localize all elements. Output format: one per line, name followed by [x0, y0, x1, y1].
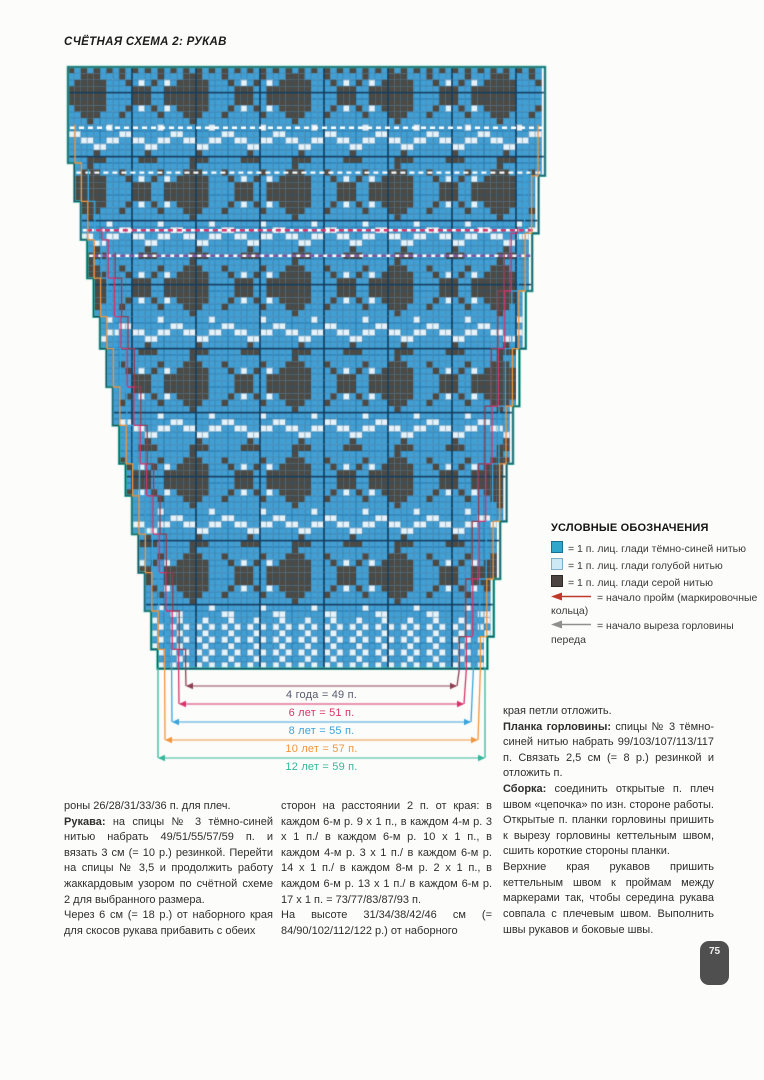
size-measurement-label: 6 лет = 51 п.: [237, 707, 407, 719]
legend-item: = 1 п. лиц. глади серой нитью: [551, 575, 759, 591]
text-column-left: роны 26/28/31/33/36 п. для плеч.Рукава: …: [64, 799, 273, 939]
legend-item: = начало пройм (маркировочные кольца): [551, 592, 759, 620]
paragraph-lead: Планка горловины:: [503, 721, 611, 733]
paragraph: сторон на расстоянии 2 п. от края: в каж…: [281, 799, 492, 908]
size-measurement-label: 12 лет = 59 п.: [237, 761, 407, 773]
page-number: 75: [709, 946, 720, 957]
stitch-color-swatch-icon: [551, 575, 563, 587]
text-column-right: края петли отложить.Планка горловины: сп…: [503, 704, 714, 938]
paragraph: На высоте 31/34/38/42/46 см (= 84/90/102…: [281, 908, 492, 939]
paragraph: Сборка: соединить открытые п. плеч швом …: [503, 782, 714, 860]
legend: УСЛОВНЫЕ ОБОЗНАЧЕНИЯ = 1 п. лиц. глади т…: [551, 522, 759, 649]
legend-items: = 1 п. лиц. глади тёмно-синей нитью= 1 п…: [551, 541, 759, 648]
paragraph-lead: Рукава:: [64, 816, 105, 828]
paragraph: Рукава: на спицы № 3 тёмно-синей нитью н…: [64, 815, 273, 909]
legend-item-label: = 1 п. лиц. глади тёмно-синей нитью: [568, 543, 746, 555]
stitch-color-swatch-icon: [551, 558, 563, 570]
paragraph-lead: Сборка:: [503, 783, 546, 795]
paragraph: Через 6 см (= 18 р.) от наборного края д…: [64, 908, 273, 939]
page-title: СЧЁТНАЯ СХЕМА 2: РУКАВ: [64, 36, 227, 48]
paragraph: Верхние края рукавов пришить кеттельным …: [503, 860, 714, 938]
knitting-chart-canvas: [38, 56, 586, 791]
marker-arrow-icon: [551, 620, 593, 629]
marker-arrow-icon: [551, 592, 593, 601]
legend-item-label: = 1 п. лиц. глади серой нитью: [568, 577, 713, 589]
legend-item-label: = 1 п. лиц. глади голубой нитью: [568, 560, 723, 572]
legend-item: = 1 п. лиц. глади голубой нитью: [551, 558, 759, 574]
legend-item: = 1 п. лиц. глади тёмно-синей нитью: [551, 541, 759, 557]
paragraph: роны 26/28/31/33/36 п. для плеч.: [64, 799, 273, 815]
text-column-middle: сторон на расстоянии 2 п. от края: в каж…: [281, 799, 492, 939]
page-number-tab: 75: [700, 941, 729, 985]
size-measurement-label: 4 года = 49 п.: [237, 689, 407, 701]
legend-item: = начало выреза горловины переда: [551, 620, 759, 648]
stitch-color-swatch-icon: [551, 541, 563, 553]
size-measurement-label: 8 лет = 55 п.: [237, 725, 407, 737]
size-measurement-label: 10 лет = 57 п.: [237, 743, 407, 755]
paragraph: края петли отложить.: [503, 704, 714, 720]
legend-title: УСЛОВНЫЕ ОБОЗНАЧЕНИЯ: [551, 522, 759, 534]
paragraph: Планка горловины: спицы № 3 тёмно-синей …: [503, 720, 714, 782]
